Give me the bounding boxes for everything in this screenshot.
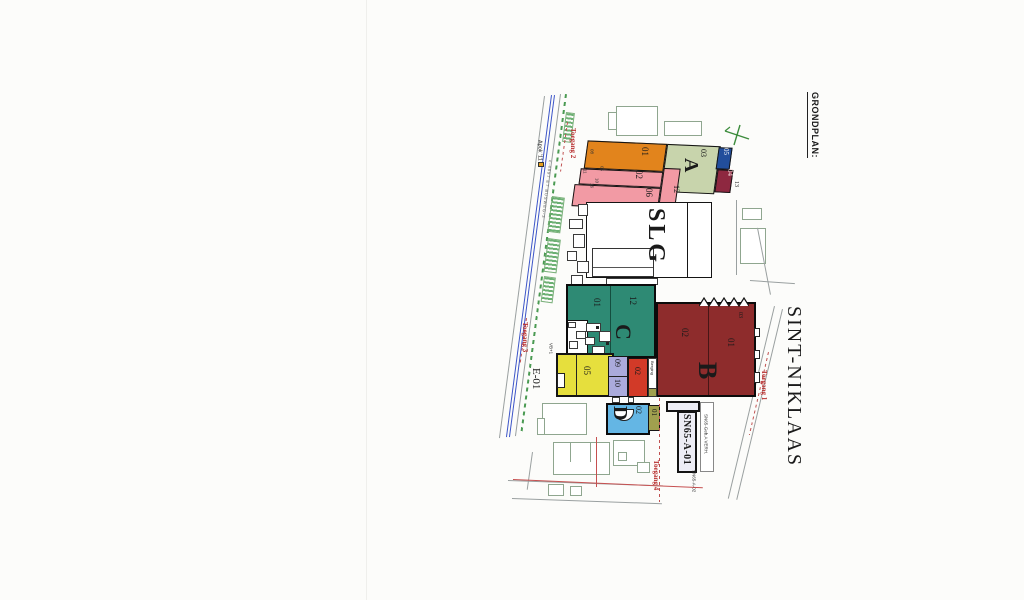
block-b-letter: B — [694, 362, 720, 379]
divider — [609, 376, 627, 377]
page-title: GRONDPLAN: — [807, 92, 819, 158]
unit-label: 12 — [628, 296, 637, 305]
sn65-main-label: SN65-A-01 — [681, 414, 691, 465]
property-line — [513, 479, 703, 488]
building-outline — [553, 442, 610, 475]
building-outline — [542, 403, 587, 435]
unit-label: 05 — [582, 366, 591, 375]
small-olive-unit — [648, 388, 657, 397]
road-line — [750, 280, 795, 284]
building-inner-line — [590, 442, 591, 462]
unit-label: 06 — [644, 188, 653, 197]
edge-unit-label: 16 — [589, 183, 594, 188]
berging-label: Berging — [650, 361, 654, 375]
small-structure — [569, 219, 583, 229]
scan-fold-line — [366, 0, 367, 600]
unit-label: 02 — [680, 328, 689, 337]
building-outline — [537, 418, 545, 435]
slg-inner-line — [593, 267, 653, 268]
edge-unit-label: 05 — [599, 166, 604, 171]
block-c-divider — [610, 286, 611, 356]
loading-dock — [754, 350, 760, 359]
entrance-label: Toegang 1 — [760, 370, 767, 400]
unit-label: 09 — [613, 359, 621, 367]
block-a-unit-01 — [584, 140, 667, 171]
edge-unit-label: 11 — [582, 169, 587, 174]
annotation: VB+1 — [548, 343, 553, 354]
notch — [557, 373, 565, 388]
entrance-label: Toegang 3 — [521, 322, 528, 352]
sn65-side-label: SN65-Geb.A VERH. — [703, 414, 708, 454]
loading-dock — [754, 328, 760, 337]
parking-strip — [541, 276, 556, 303]
sn65-bottom-label: SN65-A-02 — [691, 470, 696, 492]
small-structure — [596, 326, 599, 329]
entrance-label: Toegang 4 — [652, 460, 659, 490]
edge-unit-label: 08 — [589, 149, 594, 154]
block-e-unit-05 — [556, 353, 614, 397]
unit-label: 01 — [726, 338, 735, 347]
loading-dock — [754, 372, 760, 383]
e01-label: E-01 — [530, 368, 541, 389]
building-outline — [637, 462, 650, 473]
unit-label: 02 — [634, 170, 643, 179]
small-structure — [599, 331, 611, 342]
block-a-letter: A — [681, 158, 701, 172]
unit-label: 12 — [672, 185, 680, 193]
block-b-divider — [708, 304, 709, 395]
unit-label: 01 — [640, 147, 649, 156]
unit-label: 02 — [634, 406, 642, 414]
unit-label: 03 — [699, 149, 707, 157]
divider — [576, 355, 577, 395]
small-structure — [577, 261, 589, 273]
property-line — [596, 437, 597, 487]
building-inner-line — [570, 442, 571, 462]
building-outline — [616, 106, 658, 136]
block-c — [566, 284, 656, 358]
building-outline — [618, 452, 627, 461]
building-outline — [742, 208, 762, 220]
building-outline — [664, 121, 702, 136]
unit-label: 01 — [592, 298, 601, 307]
slg-divider — [687, 203, 688, 277]
unit-label: 01 — [650, 409, 657, 416]
street-note-icon — [538, 162, 544, 167]
building-outline — [570, 486, 582, 496]
block-b-sawtooth-edge — [699, 296, 749, 307]
small-structure — [606, 342, 609, 345]
road-line — [736, 200, 737, 275]
scanned-site-plan-page: 01 02 06 12 03 A 05 04 13 08 05 11 10 16… — [0, 0, 1024, 600]
small-structure — [578, 204, 588, 216]
small-structure — [567, 251, 577, 261]
unit-label: 05 — [722, 148, 729, 155]
small-structure — [585, 337, 595, 345]
slg-label: SLG — [644, 208, 668, 265]
block-c-letter: C — [612, 324, 634, 340]
city-label: SINT-NIKLAAS — [784, 306, 804, 467]
street-note: Apok '11 — [536, 140, 542, 161]
small-structure — [573, 234, 585, 248]
unit-label: 03 — [737, 312, 743, 318]
north-arrow-icon — [724, 124, 750, 146]
entrance-label: Toegang 2 — [569, 128, 576, 158]
small-structure — [568, 322, 576, 328]
unit-label: 04 — [726, 169, 733, 176]
unit-label: 10 — [613, 379, 621, 387]
block-unit-02-red — [628, 358, 648, 397]
edge-unit-label: 10 — [594, 178, 599, 183]
unit-label: 02 — [633, 367, 641, 375]
road-line — [527, 452, 533, 490]
road-line — [512, 498, 662, 504]
block-d-letter: D — [610, 406, 630, 420]
building-outline — [548, 484, 564, 496]
small-structure — [569, 341, 578, 349]
unit-label: 13 — [733, 181, 739, 187]
